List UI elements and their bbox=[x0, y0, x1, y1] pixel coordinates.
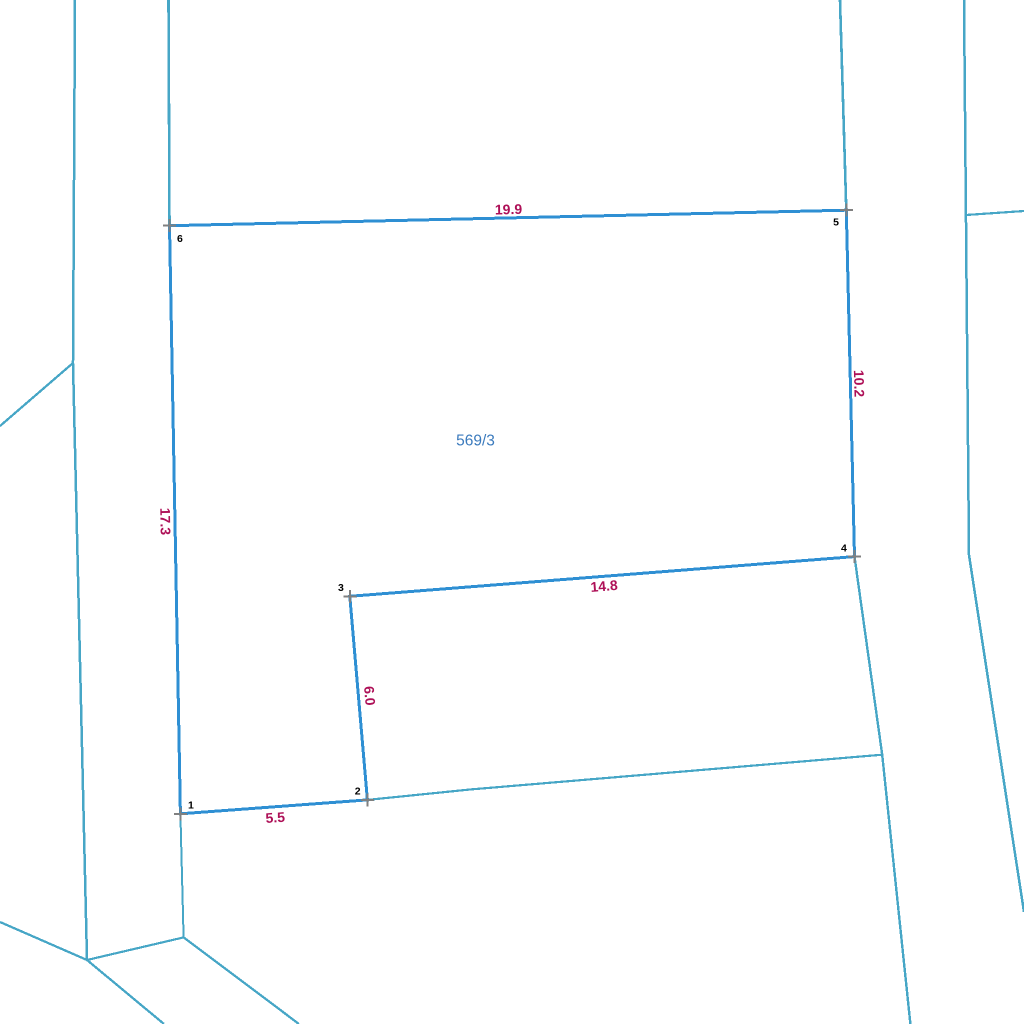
svg-text:4: 4 bbox=[841, 543, 847, 555]
svg-text:3: 3 bbox=[338, 582, 344, 594]
svg-text:5: 5 bbox=[833, 217, 839, 229]
svg-text:6: 6 bbox=[177, 233, 183, 245]
svg-text:17.3: 17.3 bbox=[157, 508, 174, 536]
svg-text:569/3: 569/3 bbox=[456, 433, 495, 450]
svg-text:10.2: 10.2 bbox=[851, 370, 868, 398]
svg-text:14.8: 14.8 bbox=[590, 577, 619, 595]
svg-text:19.9: 19.9 bbox=[495, 201, 523, 218]
svg-text:6.0: 6.0 bbox=[361, 685, 379, 706]
svg-text:1: 1 bbox=[188, 800, 194, 812]
svg-text:5.5: 5.5 bbox=[265, 809, 286, 826]
svg-text:2: 2 bbox=[355, 786, 361, 798]
